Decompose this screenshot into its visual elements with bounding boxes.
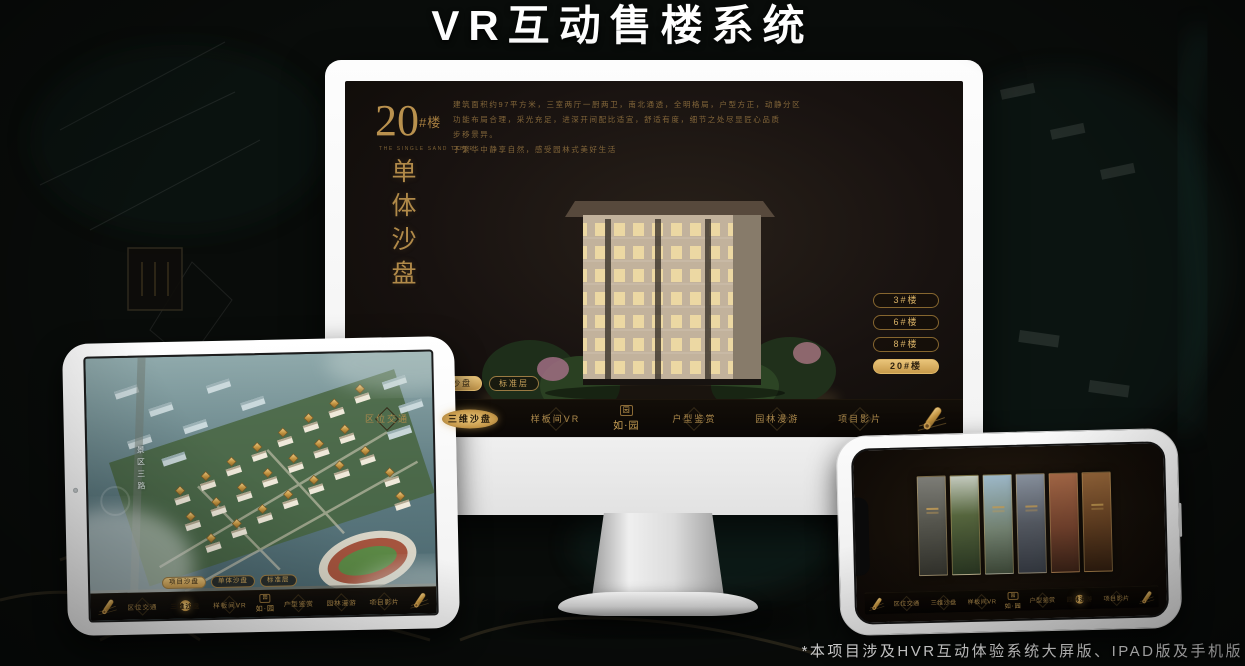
footnote: *本项目涉及HVR互动体验系统大屏版、IPAD版及手机版 xyxy=(802,640,1243,661)
tablet-screen: 景区三路 项目沙盘 单体沙盘 标准层 区位交通 三维沙盘 样板间VR 园 如·园… xyxy=(83,349,438,622)
monitor-stand-base xyxy=(558,592,758,616)
nav-item-3d-sandbox[interactable]: 三维沙盘 xyxy=(166,598,204,613)
tablet-device: 景区三路 项目沙盘 单体沙盘 标准层 区位交通 三维沙盘 样板间VR 园 如·园… xyxy=(62,336,460,636)
gallery-strip[interactable] xyxy=(1016,473,1047,574)
nav-item-location[interactable]: 区位交通 xyxy=(123,599,161,614)
tab-project-sandbox[interactable]: 项目沙盘 xyxy=(162,576,206,589)
scroll-menu-icon[interactable] xyxy=(96,596,118,618)
plaque-sign xyxy=(128,248,182,310)
nav-item-showroom-vr[interactable]: 样板间VR xyxy=(525,409,587,428)
tab-standard-floor[interactable]: 标准层 xyxy=(489,376,539,391)
brand-logo-mark: 园 xyxy=(1008,591,1019,599)
tablet-camera xyxy=(73,488,78,493)
scroll-menu-icon[interactable] xyxy=(915,402,949,436)
gallery-strip[interactable] xyxy=(983,474,1014,575)
building-button-6[interactable]: 6#楼 xyxy=(873,315,939,330)
strip-caption xyxy=(1091,504,1103,506)
strip-caption xyxy=(926,508,938,510)
scroll-menu-icon[interactable] xyxy=(1137,588,1155,606)
brand-logo: 园 如·园 xyxy=(1004,591,1021,609)
tab-standard-floor[interactable]: 标准层 xyxy=(260,574,297,587)
gallery-strip[interactable] xyxy=(950,475,981,576)
phone-screen: 区位交通 三维沙盘 样板间VR 园 如·园 户型鉴赏 园林漫游 项目影片 xyxy=(851,441,1169,625)
monitor-stand-neck xyxy=(592,513,724,597)
scroll-menu-icon[interactable] xyxy=(867,595,885,613)
nav-item-garden-roam[interactable]: 园林漫游 xyxy=(1063,592,1095,606)
nav-item-3d-sandbox[interactable]: 三维沙盘 xyxy=(442,409,498,428)
tab-single-sandbox[interactable]: 单体沙盘 xyxy=(211,575,255,588)
nav-item-project-film[interactable]: 项目影片 xyxy=(1100,591,1132,605)
nav-item-showroom-vr[interactable]: 样板间VR xyxy=(209,597,251,612)
nav-item-location[interactable]: 区位交通 xyxy=(891,596,923,610)
phone-navbar: 区位交通 三维沙盘 样板间VR 园 如·园 户型鉴赏 园林漫游 项目影片 xyxy=(864,585,1158,614)
nav-item-showroom-vr[interactable]: 样板间VR xyxy=(965,594,1000,608)
nav-item-project-film[interactable]: 项目影片 xyxy=(832,409,888,428)
brand-logo: 园 如·园 xyxy=(255,594,275,614)
nav-item-floorplan[interactable]: 户型鉴赏 xyxy=(280,596,318,611)
phone-device: 区位交通 三维沙盘 样板间VR 园 如·园 户型鉴赏 园林漫游 项目影片 xyxy=(836,428,1183,636)
brand-logo: 园 如·园 xyxy=(613,405,639,432)
road-label: 景区三路 xyxy=(135,445,147,493)
brand-logo-text: 如·园 xyxy=(1005,600,1022,609)
nav-item-project-film[interactable]: 项目影片 xyxy=(365,594,403,609)
nav-item-3d-sandbox[interactable]: 三维沙盘 xyxy=(928,595,960,609)
building-button-8[interactable]: 8#楼 xyxy=(873,337,939,352)
strip-caption xyxy=(992,506,1004,508)
building-button-3[interactable]: 3#楼 xyxy=(873,293,939,308)
nav-item-floorplan[interactable]: 户型鉴赏 xyxy=(666,409,722,428)
page-title: VR互动售楼系统 xyxy=(0,0,1245,52)
brand-logo-text: 如·园 xyxy=(613,417,639,432)
nav-item-floorplan[interactable]: 户型鉴赏 xyxy=(1026,593,1058,607)
poster: VR互动售楼系统 20#楼 THE SINGLE SAND TABLE 单体沙盘… xyxy=(0,0,1245,666)
building-selector: 3#楼 6#楼 8#楼 20#楼 xyxy=(873,293,939,381)
brand-logo-text: 如·园 xyxy=(256,604,276,614)
nav-item-garden-roam[interactable]: 园林漫游 xyxy=(323,595,361,610)
phone-notch xyxy=(852,497,870,575)
gallery-strip[interactable] xyxy=(917,476,948,577)
gallery-strip[interactable] xyxy=(1049,472,1080,573)
nav-item-garden-roam[interactable]: 园林漫游 xyxy=(749,409,805,428)
building-button-20[interactable]: 20#楼 xyxy=(873,359,939,374)
gallery-strips xyxy=(917,472,1113,577)
gallery-strip[interactable] xyxy=(1082,472,1113,573)
nav-item-location[interactable]: 区位交通 xyxy=(359,409,415,428)
brand-logo-mark: 园 xyxy=(620,405,633,416)
scroll-menu-icon[interactable] xyxy=(408,589,430,611)
strip-caption xyxy=(1025,506,1037,508)
brand-logo-mark: 园 xyxy=(260,594,271,603)
